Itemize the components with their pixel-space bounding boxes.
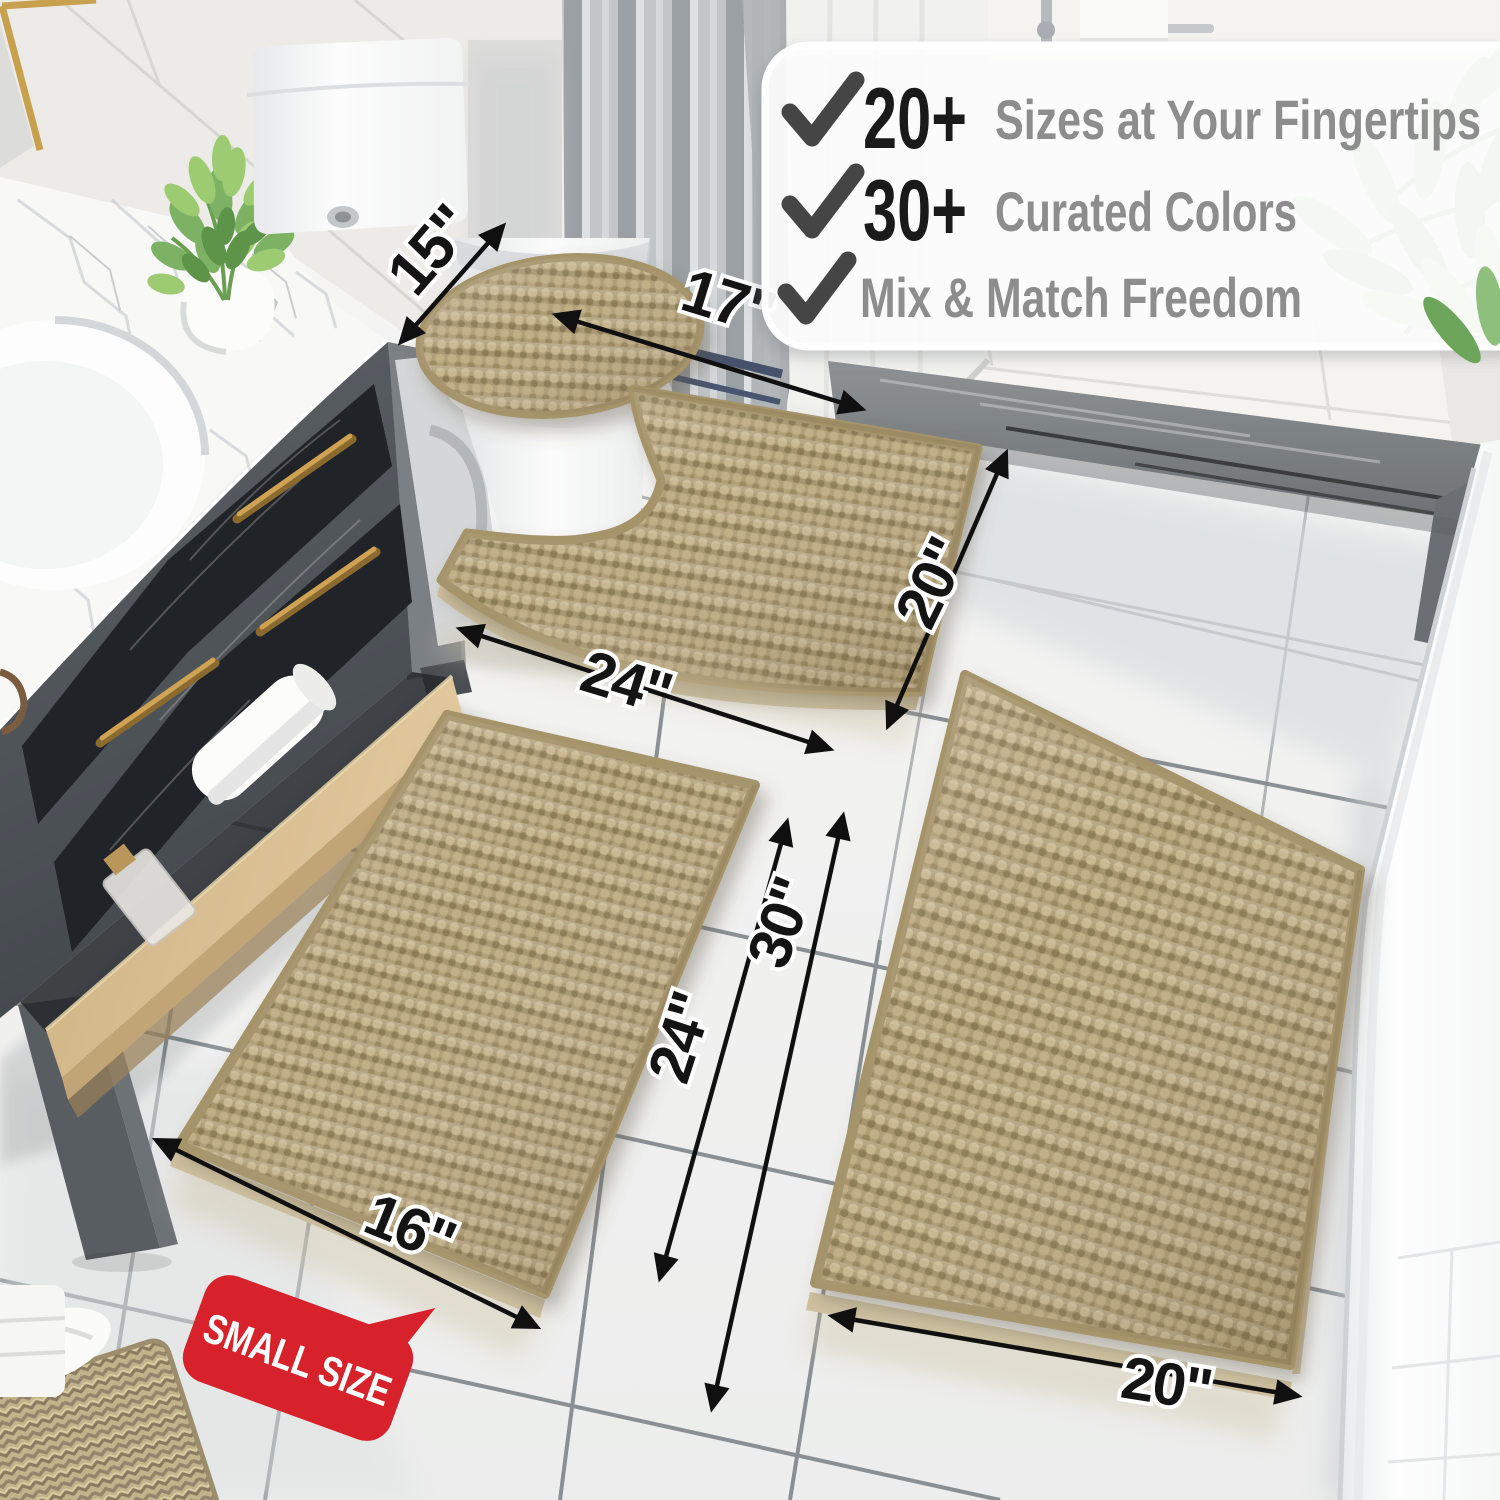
svg-text:Sizes at Your Fingertips: Sizes at Your Fingertips <box>995 88 1481 151</box>
svg-text:20+: 20+ <box>863 71 967 167</box>
svg-text:Mix & Match Freedom: Mix & Match Freedom <box>860 266 1302 329</box>
svg-text:20": 20" <box>1117 1344 1216 1424</box>
svg-text:Curated Colors: Curated Colors <box>995 180 1297 243</box>
svg-text:30+: 30+ <box>863 163 967 259</box>
